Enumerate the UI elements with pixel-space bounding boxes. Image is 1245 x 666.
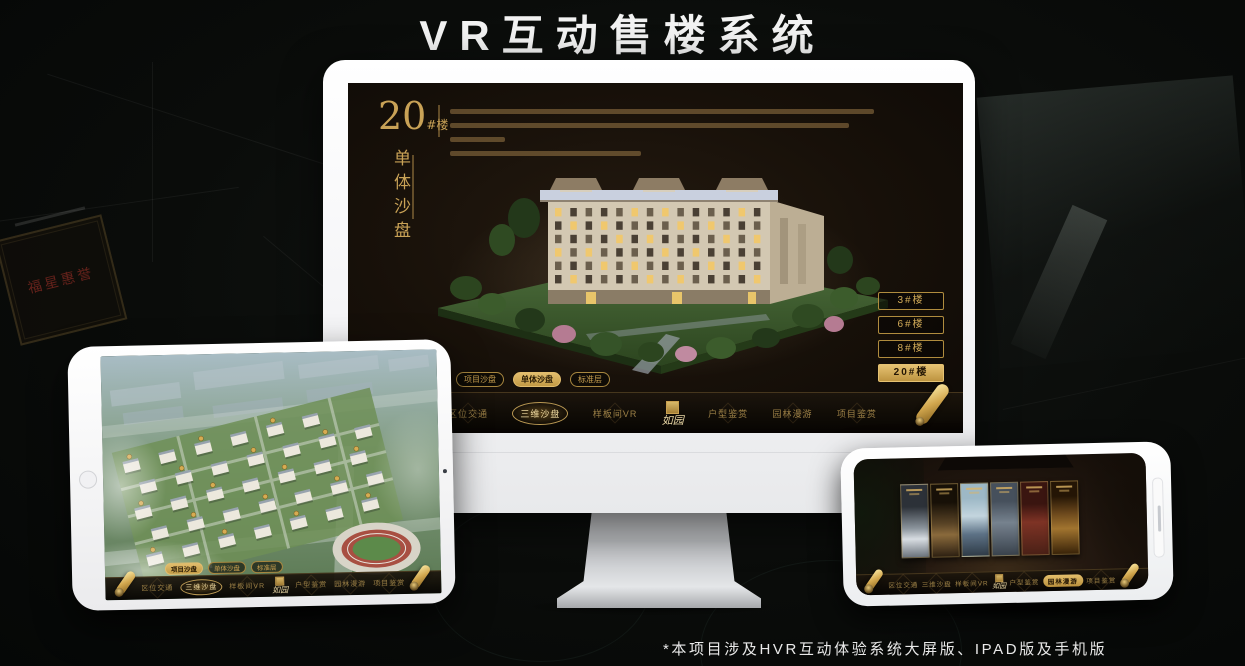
phone-device: 区位交通 三维沙盘 样板间VR 如园 户型鉴赏 园林漫游 项目鉴赏	[840, 441, 1173, 606]
tab-project-sandbox[interactable]: 项目沙盘	[165, 562, 203, 575]
floor-button-6[interactable]: 6#楼	[878, 316, 944, 334]
gallery-panel[interactable]	[1050, 480, 1080, 555]
brand-logo-text: 如园	[992, 583, 1006, 590]
menu-item-3d-sandbox[interactable]: 三维沙盘	[512, 402, 568, 425]
menu-item-floorplan[interactable]: 户型鉴赏	[295, 580, 327, 591]
description-line	[450, 151, 641, 156]
bg-map-line	[152, 62, 153, 262]
brand-logo-text: 如园	[272, 586, 288, 594]
brand-logo: 如园	[992, 574, 1006, 590]
gallery-panel[interactable]	[900, 484, 930, 559]
menu-item-project-view[interactable]: 项目鉴赏	[1086, 575, 1116, 586]
building-render	[436, 138, 891, 383]
menu-item-floorplan[interactable]: 户型鉴赏	[1009, 576, 1039, 587]
menu-item-project-view[interactable]: 项目鉴赏	[373, 578, 405, 589]
menu-item-3d-sandbox[interactable]: 三维沙盘	[180, 579, 222, 596]
description-line	[450, 123, 849, 128]
tab-single-sandbox[interactable]: 单体沙盘	[513, 372, 561, 387]
description-line	[450, 109, 874, 114]
stage: 福星惠誉 VR互动售楼系统 20#楼 单体沙盘	[0, 0, 1245, 666]
menu-item-showroom-vr[interactable]: 样板间VR	[593, 407, 638, 420]
tab-standard-floor[interactable]: 标准层	[251, 561, 283, 574]
building-number: 20	[378, 94, 426, 138]
gallery-panel[interactable]	[990, 482, 1020, 557]
building-subtitle: 单体沙盘	[388, 149, 413, 245]
menu-item-3d-sandbox[interactable]: 三维沙盘	[922, 578, 952, 589]
phone-speaker-slot-icon	[1158, 506, 1162, 532]
gallery-panel[interactable]	[930, 483, 960, 558]
brand-seal-icon	[666, 401, 679, 414]
menu-item-location[interactable]: 区位交通	[888, 579, 918, 590]
description-line	[450, 137, 505, 142]
menu-item-showroom-vr[interactable]: 样板间VR	[229, 581, 265, 592]
brand-logo: 如园	[272, 576, 288, 594]
monitor-tab-row: 项目沙盘 单体沙盘 标准层	[456, 372, 610, 387]
bg-plaque: 福星惠誉	[0, 214, 127, 345]
footnote: *本项目涉及HVR互动体验系统大屏版、IPAD版及手机版	[663, 638, 1107, 659]
menu-item-garden-tour[interactable]: 园林漫游	[1043, 574, 1083, 587]
menu-item-garden-tour[interactable]: 园林漫游	[773, 407, 813, 420]
subtitle-english-line	[438, 105, 440, 137]
phone-screen: 区位交通 三维沙盘 样板间VR 如园 户型鉴赏 园林漫游 项目鉴赏	[853, 453, 1148, 596]
brand-seal-icon	[275, 577, 284, 586]
bg-photo	[977, 75, 1245, 368]
floor-button-20[interactable]: 20#楼	[878, 364, 944, 382]
description-text-blurred	[450, 109, 874, 165]
ipad-tab-row: 项目沙盘 单体沙盘 标准层	[165, 561, 283, 575]
floor-button-8[interactable]: 8#楼	[878, 340, 944, 358]
floor-button-3[interactable]: 3#楼	[878, 292, 944, 310]
menu-item-floorplan[interactable]: 户型鉴赏	[708, 407, 748, 420]
subtitle-english-line	[412, 155, 414, 219]
gallery-panel[interactable]	[1020, 481, 1050, 556]
brand-logo-text: 如园	[662, 415, 684, 426]
menu-item-location[interactable]: 区位交通	[141, 583, 173, 594]
ipad-camera-icon	[443, 469, 447, 473]
building-gables	[550, 178, 768, 192]
brand-logo: 如园	[662, 401, 684, 426]
menu-item-location[interactable]: 区位交通	[448, 407, 488, 420]
bg-plaque-text: 福星惠誉	[26, 262, 97, 298]
brand-seal-icon	[995, 574, 1003, 582]
floor-button-group: 3#楼 6#楼 8#楼 20#楼	[878, 292, 944, 388]
tab-standard-floor[interactable]: 标准层	[570, 372, 610, 387]
menu-item-garden-tour[interactable]: 园林漫游	[334, 579, 366, 590]
ipad-device: 项目沙盘 单体沙盘 标准层 区位交通 三维沙盘 样板间VR 如园 户型鉴赏 园林…	[67, 339, 455, 611]
tab-single-sandbox[interactable]: 单体沙盘	[208, 561, 246, 574]
bg-map-line	[47, 74, 333, 168]
page-title: VR互动售楼系统	[0, 2, 1245, 63]
tab-project-sandbox[interactable]: 项目沙盘	[456, 372, 504, 387]
gallery-panel[interactable]	[960, 482, 990, 557]
ipad-screen: 项目沙盘 单体沙盘 标准层 区位交通 三维沙盘 样板间VR 如园 户型鉴赏 园林…	[100, 349, 441, 600]
menu-item-project-view[interactable]: 项目鉴赏	[837, 407, 877, 420]
menu-item-showroom-vr[interactable]: 样板间VR	[955, 577, 989, 588]
